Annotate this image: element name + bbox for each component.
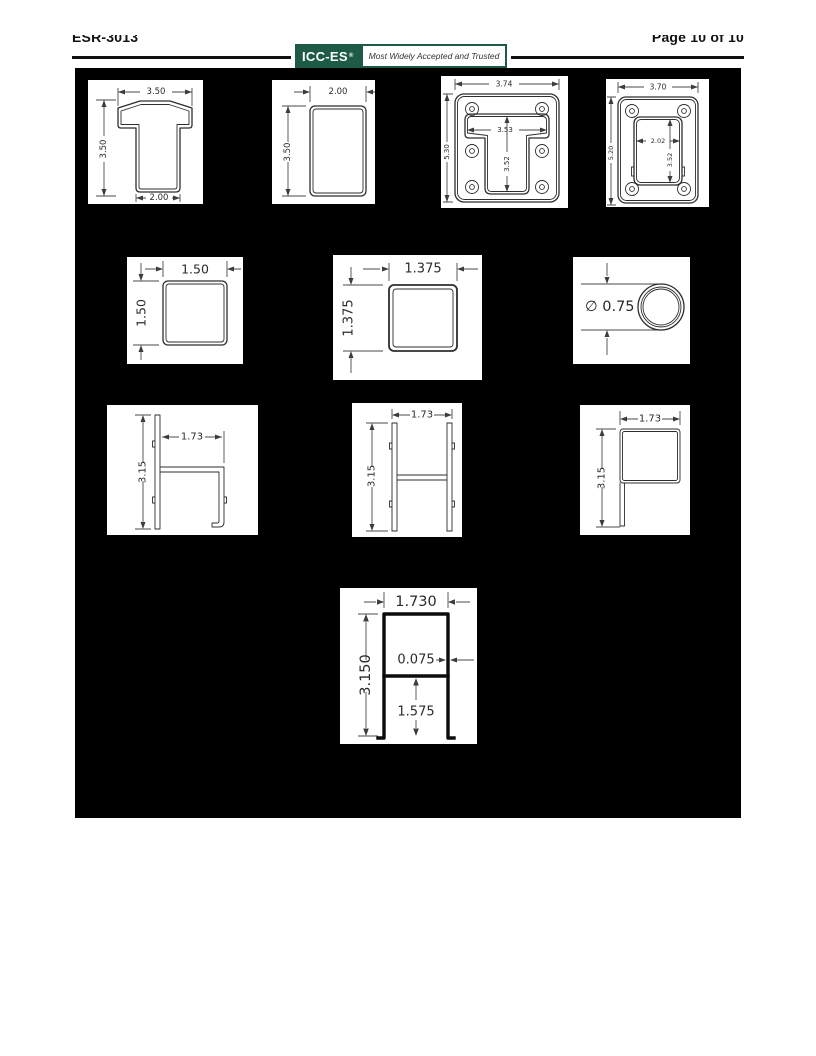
figure-tee-profile: 3.50 3.50 2.00 — [88, 80, 203, 204]
dim-label-cutout-width: 2.02 — [651, 137, 665, 145]
dimension-lines — [596, 411, 680, 527]
registered-mark-icon: ® — [349, 53, 354, 59]
report-number-text: ESR-3013 — [72, 35, 138, 45]
profile-outline — [118, 101, 192, 192]
dim-label-width: 1.73 — [181, 432, 203, 443]
dim-label-width: 1.730 — [395, 594, 437, 610]
figure-square-tube-1375: 1.375 1.375 — [333, 255, 482, 380]
page-number: Page 10 of 10 — [652, 35, 744, 47]
dim-label-height: 5.20 — [607, 146, 615, 160]
report-page: ESR-3013 Page 10 of 10 ICC-ES® Most Wide… — [0, 0, 816, 1056]
h-channel-drawing: 1.73 3.15 — [107, 405, 258, 535]
dim-label-width: 3.74 — [496, 80, 513, 89]
dim-label-diameter: ∅ 0.75 — [585, 299, 635, 315]
figure-mount-plate-6hole: 3.74 5.30 3.53 3.52 — [441, 76, 568, 208]
dimension-lines — [366, 409, 452, 531]
dim-label-slot-width: 3.53 — [497, 126, 513, 134]
figure-h-channel: 1.73 3.15 — [107, 405, 258, 535]
figure-H-section: 1.73 3.15 — [352, 403, 462, 537]
dim-label-height: 3.150 — [358, 654, 374, 696]
icc-es-logo-text: ICC-ES — [302, 49, 348, 64]
dim-label-base: 2.00 — [150, 193, 169, 203]
dim-label-width: 1.50 — [181, 262, 209, 277]
dim-label-width: 1.73 — [411, 410, 433, 421]
H-section-drawing: 1.73 3.15 — [352, 403, 462, 537]
figure-mount-plate-4hole: 3.70 5.20 2.02 3.52 — [606, 79, 709, 207]
tee-profile-drawing: 3.50 3.50 2.00 — [88, 80, 203, 204]
dim-label-width: 3.50 — [147, 87, 166, 97]
dim-label-height: 3.50 — [99, 140, 109, 159]
profile-outline — [620, 429, 680, 526]
profile-outline — [310, 106, 366, 196]
figure-h-extrusion-detail: 1.730 3.150 0.075 1.575 — [340, 588, 477, 744]
h-extrusion-detail-drawing: 1.730 3.150 0.075 1.575 — [340, 588, 477, 744]
dim-label-height: 3.15 — [367, 465, 378, 487]
dimension-lines — [282, 86, 375, 196]
dim-label-height: 5.30 — [443, 144, 451, 160]
report-number: ESR-3013 — [72, 35, 138, 47]
profile-outline — [638, 284, 684, 330]
dim-label-height: 1.375 — [342, 299, 357, 336]
dim-label-slot-depth: 3.52 — [503, 156, 511, 172]
dim-label-height: 3.15 — [138, 461, 149, 483]
round-tube-drawing: ∅ 0.75 — [573, 257, 690, 364]
mount-plate-4hole-drawing: 3.70 5.20 2.02 3.52 — [606, 79, 709, 207]
dim-label-width: 1.375 — [404, 262, 441, 277]
dim-label-wall: 0.075 — [397, 653, 434, 668]
dimension-lines — [96, 88, 192, 202]
rect-tube-drawing: 2.00 3.50 — [272, 80, 375, 204]
figure-rect-tube: 2.00 3.50 — [272, 80, 375, 204]
figure-p-channel: 1.73 3.15 — [580, 405, 690, 535]
icc-es-logo: ICC-ES® Most Widely Accepted and Trusted — [291, 44, 511, 68]
p-channel-drawing: 1.73 3.15 — [580, 405, 690, 535]
dim-label-cutout-height: 3.52 — [666, 153, 674, 167]
page-number-text: Page 10 of 10 — [652, 35, 744, 45]
mount-plate-6hole-drawing: 3.74 5.30 3.53 3.52 — [441, 76, 568, 208]
dim-label-leg: 1.575 — [397, 705, 434, 720]
dim-label-width: 3.70 — [650, 83, 667, 92]
figure-round-tube: ∅ 0.75 — [573, 257, 690, 364]
profile-outline — [163, 281, 227, 345]
square-tube-150-drawing: 1.50 1.50 — [127, 257, 243, 364]
icc-es-logo-mark: ICC-ES® — [295, 44, 361, 68]
dim-label-height: 3.50 — [283, 143, 293, 162]
profile-outline — [389, 285, 457, 351]
dim-label-height: 3.15 — [597, 467, 608, 489]
profile-outline — [390, 423, 455, 531]
dim-label-width: 1.73 — [639, 414, 661, 425]
dim-label-height: 1.50 — [134, 299, 149, 327]
square-tube-1375-drawing: 1.375 1.375 — [333, 255, 482, 380]
figure-square-tube-150: 1.50 1.50 — [127, 257, 243, 364]
figure-field: 3.50 3.50 2.00 2.00 3.50 — [75, 68, 741, 818]
dim-label-width: 2.00 — [329, 87, 348, 97]
icc-es-tagline: Most Widely Accepted and Trusted — [361, 44, 508, 68]
